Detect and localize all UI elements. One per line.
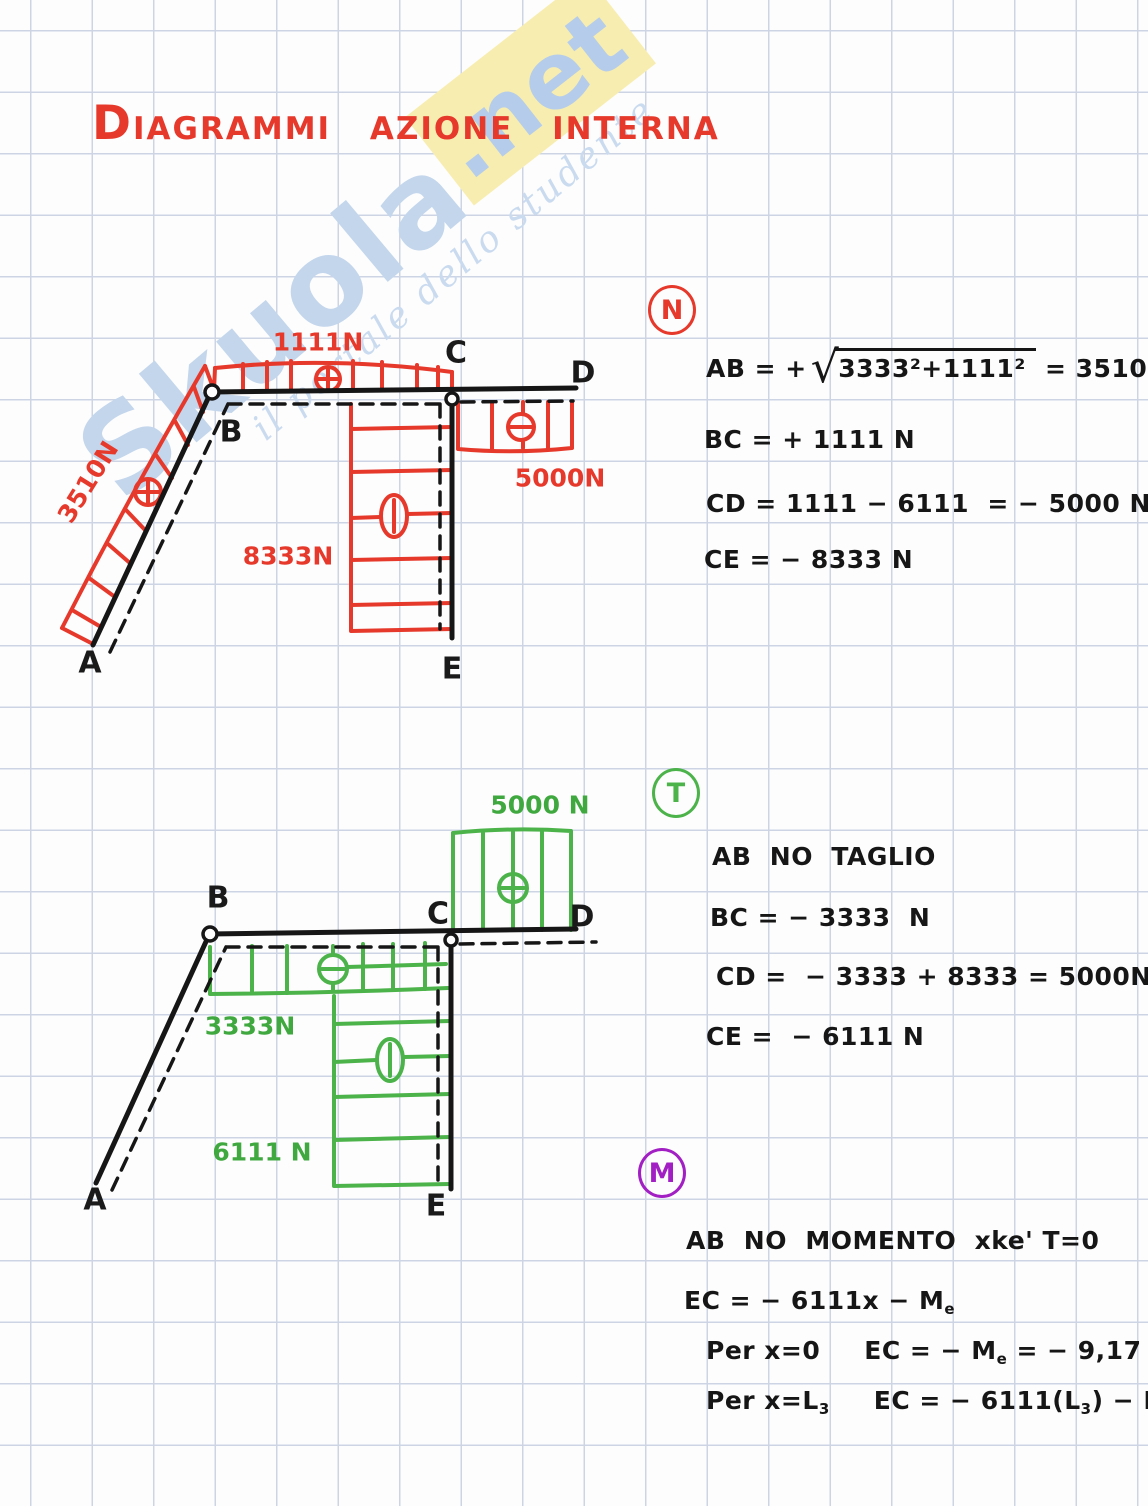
- hatch-ce-t-edges: [334, 996, 450, 1186]
- t-node-c-label: C: [427, 897, 449, 932]
- joint-b: [205, 385, 219, 399]
- n-eq-ce: CE = − 8333 N: [704, 545, 913, 574]
- sign-minus-ce-icon: [381, 495, 407, 537]
- n-load-cd-label: 5000N: [515, 464, 606, 493]
- sign-plus-ab-strokes: [137, 481, 159, 503]
- hatch-bc-top-edge: [215, 363, 452, 372]
- sign-minus-bc-stroke: [322, 964, 446, 969]
- sign-minus-ce-t-icon: [377, 1039, 403, 1081]
- section-n-badge: N: [648, 285, 696, 335]
- member-bd: [211, 388, 576, 392]
- hatch-ce-edges: [351, 404, 452, 631]
- hatch-ce-rungs: [351, 427, 452, 605]
- sign-plus-cd-icon: [499, 874, 527, 902]
- notebook-page: Skuola .net il portale dello studente DI…: [0, 0, 1148, 1506]
- member-ab: [93, 392, 211, 645]
- t-diagram-hatch: [210, 829, 571, 1186]
- frame-dashed-axis: [110, 401, 573, 652]
- n-node-b-label: B: [220, 415, 243, 450]
- joint-c: [446, 393, 458, 405]
- n-node-c-label: C: [445, 336, 467, 371]
- hatch-bc-caps: [214, 368, 452, 390]
- hatch-bc-rungs: [243, 361, 438, 390]
- sign-plus-cd-strokes: [502, 877, 524, 899]
- n-load-ce-label: 8333N: [243, 542, 334, 571]
- sign-minus-bc-icon: [319, 955, 347, 983]
- m-eq-x0: Per x=0EC = − Me = − 9,17 kNm: [706, 1336, 1148, 1365]
- member-bd-t: [209, 929, 576, 934]
- joint-b-t: [203, 927, 217, 941]
- watermark-brand: Skuola: [58, 132, 487, 518]
- hatch-cd-edges: [458, 402, 572, 451]
- m-eq-ab: AB NO MOMENTO xke' T=0: [686, 1226, 1099, 1255]
- hatch-cd-t-edges: [453, 829, 571, 930]
- n-node-e-label: E: [442, 652, 463, 687]
- n-eq-ab: AB = +√3333²+1111² = 3510 N: [706, 348, 1148, 383]
- hatch-cd-rungs: [492, 402, 548, 449]
- diagrams-canvas: [0, 0, 1148, 1506]
- t-diagram-frame: [96, 927, 596, 1190]
- n-node-d-label: D: [571, 356, 596, 391]
- t-node-d-label: D: [570, 900, 595, 935]
- watermark-tagline: il portale dello studente: [245, 25, 739, 449]
- n-diagram-hatch: [62, 361, 572, 644]
- sign-minus-cd-icon: [508, 414, 534, 440]
- member-ab-t: [96, 935, 209, 1183]
- watermark: Skuola .net il portale dello studente: [58, 0, 739, 545]
- t-load-bc-label: 3333N: [205, 1012, 296, 1041]
- section-m-badge: M: [638, 1148, 686, 1198]
- hatch-cd-t-rungs: [483, 831, 542, 930]
- n-load-ab-label: 3510N: [52, 436, 125, 528]
- t-node-b-label: B: [207, 881, 230, 916]
- sign-plus-bc-strokes: [318, 369, 338, 389]
- t-eq-bc: BC = − 3333 N: [710, 903, 930, 932]
- hatch-bc-t-rungs: [252, 943, 425, 993]
- t-load-ce-label: 6111 N: [212, 1138, 311, 1167]
- t-eq-ab: AB NO TAGLIO: [712, 842, 936, 871]
- section-t-badge: T: [652, 768, 700, 818]
- joint-c-t: [445, 934, 457, 946]
- t-node-a-label: A: [83, 1183, 106, 1218]
- t-node-e-label: E: [426, 1189, 447, 1224]
- n-eq-bc: BC = + 1111 N: [704, 425, 915, 454]
- m-eq-xl3: Per x=L3EC = − 6111(L3) − Me = 0: [706, 1386, 1148, 1415]
- t-eq-ce: CE = − 6111 N: [706, 1022, 924, 1051]
- t-eq-cd: CD = − 3333 + 8333 = 5000N: [716, 962, 1148, 991]
- hatch-ce-t-rungs: [334, 1021, 450, 1140]
- t-load-cd-label: 5000 N: [490, 791, 589, 820]
- m-eq-ec: EC = − 6111x − Me: [684, 1286, 955, 1315]
- sqrt-radical-icon: √: [811, 358, 840, 378]
- sign-plus-ab-icon: [135, 479, 161, 505]
- hatch-ab-rungs: [72, 387, 203, 627]
- page-title: DIAGRAMMI AZIONE INTERNA: [92, 96, 720, 151]
- n-eq-cd: CD = 1111 − 6111 = − 5000 N: [706, 489, 1148, 518]
- n-diagram-frame: [93, 385, 576, 652]
- frame-dashed-axis-t: [112, 942, 596, 1190]
- hatch-bc-t-edges: [210, 947, 448, 994]
- sign-plus-bc-icon: [316, 367, 340, 391]
- n-node-a-label: A: [78, 646, 101, 681]
- n-load-bc-label: 1111N: [273, 328, 364, 357]
